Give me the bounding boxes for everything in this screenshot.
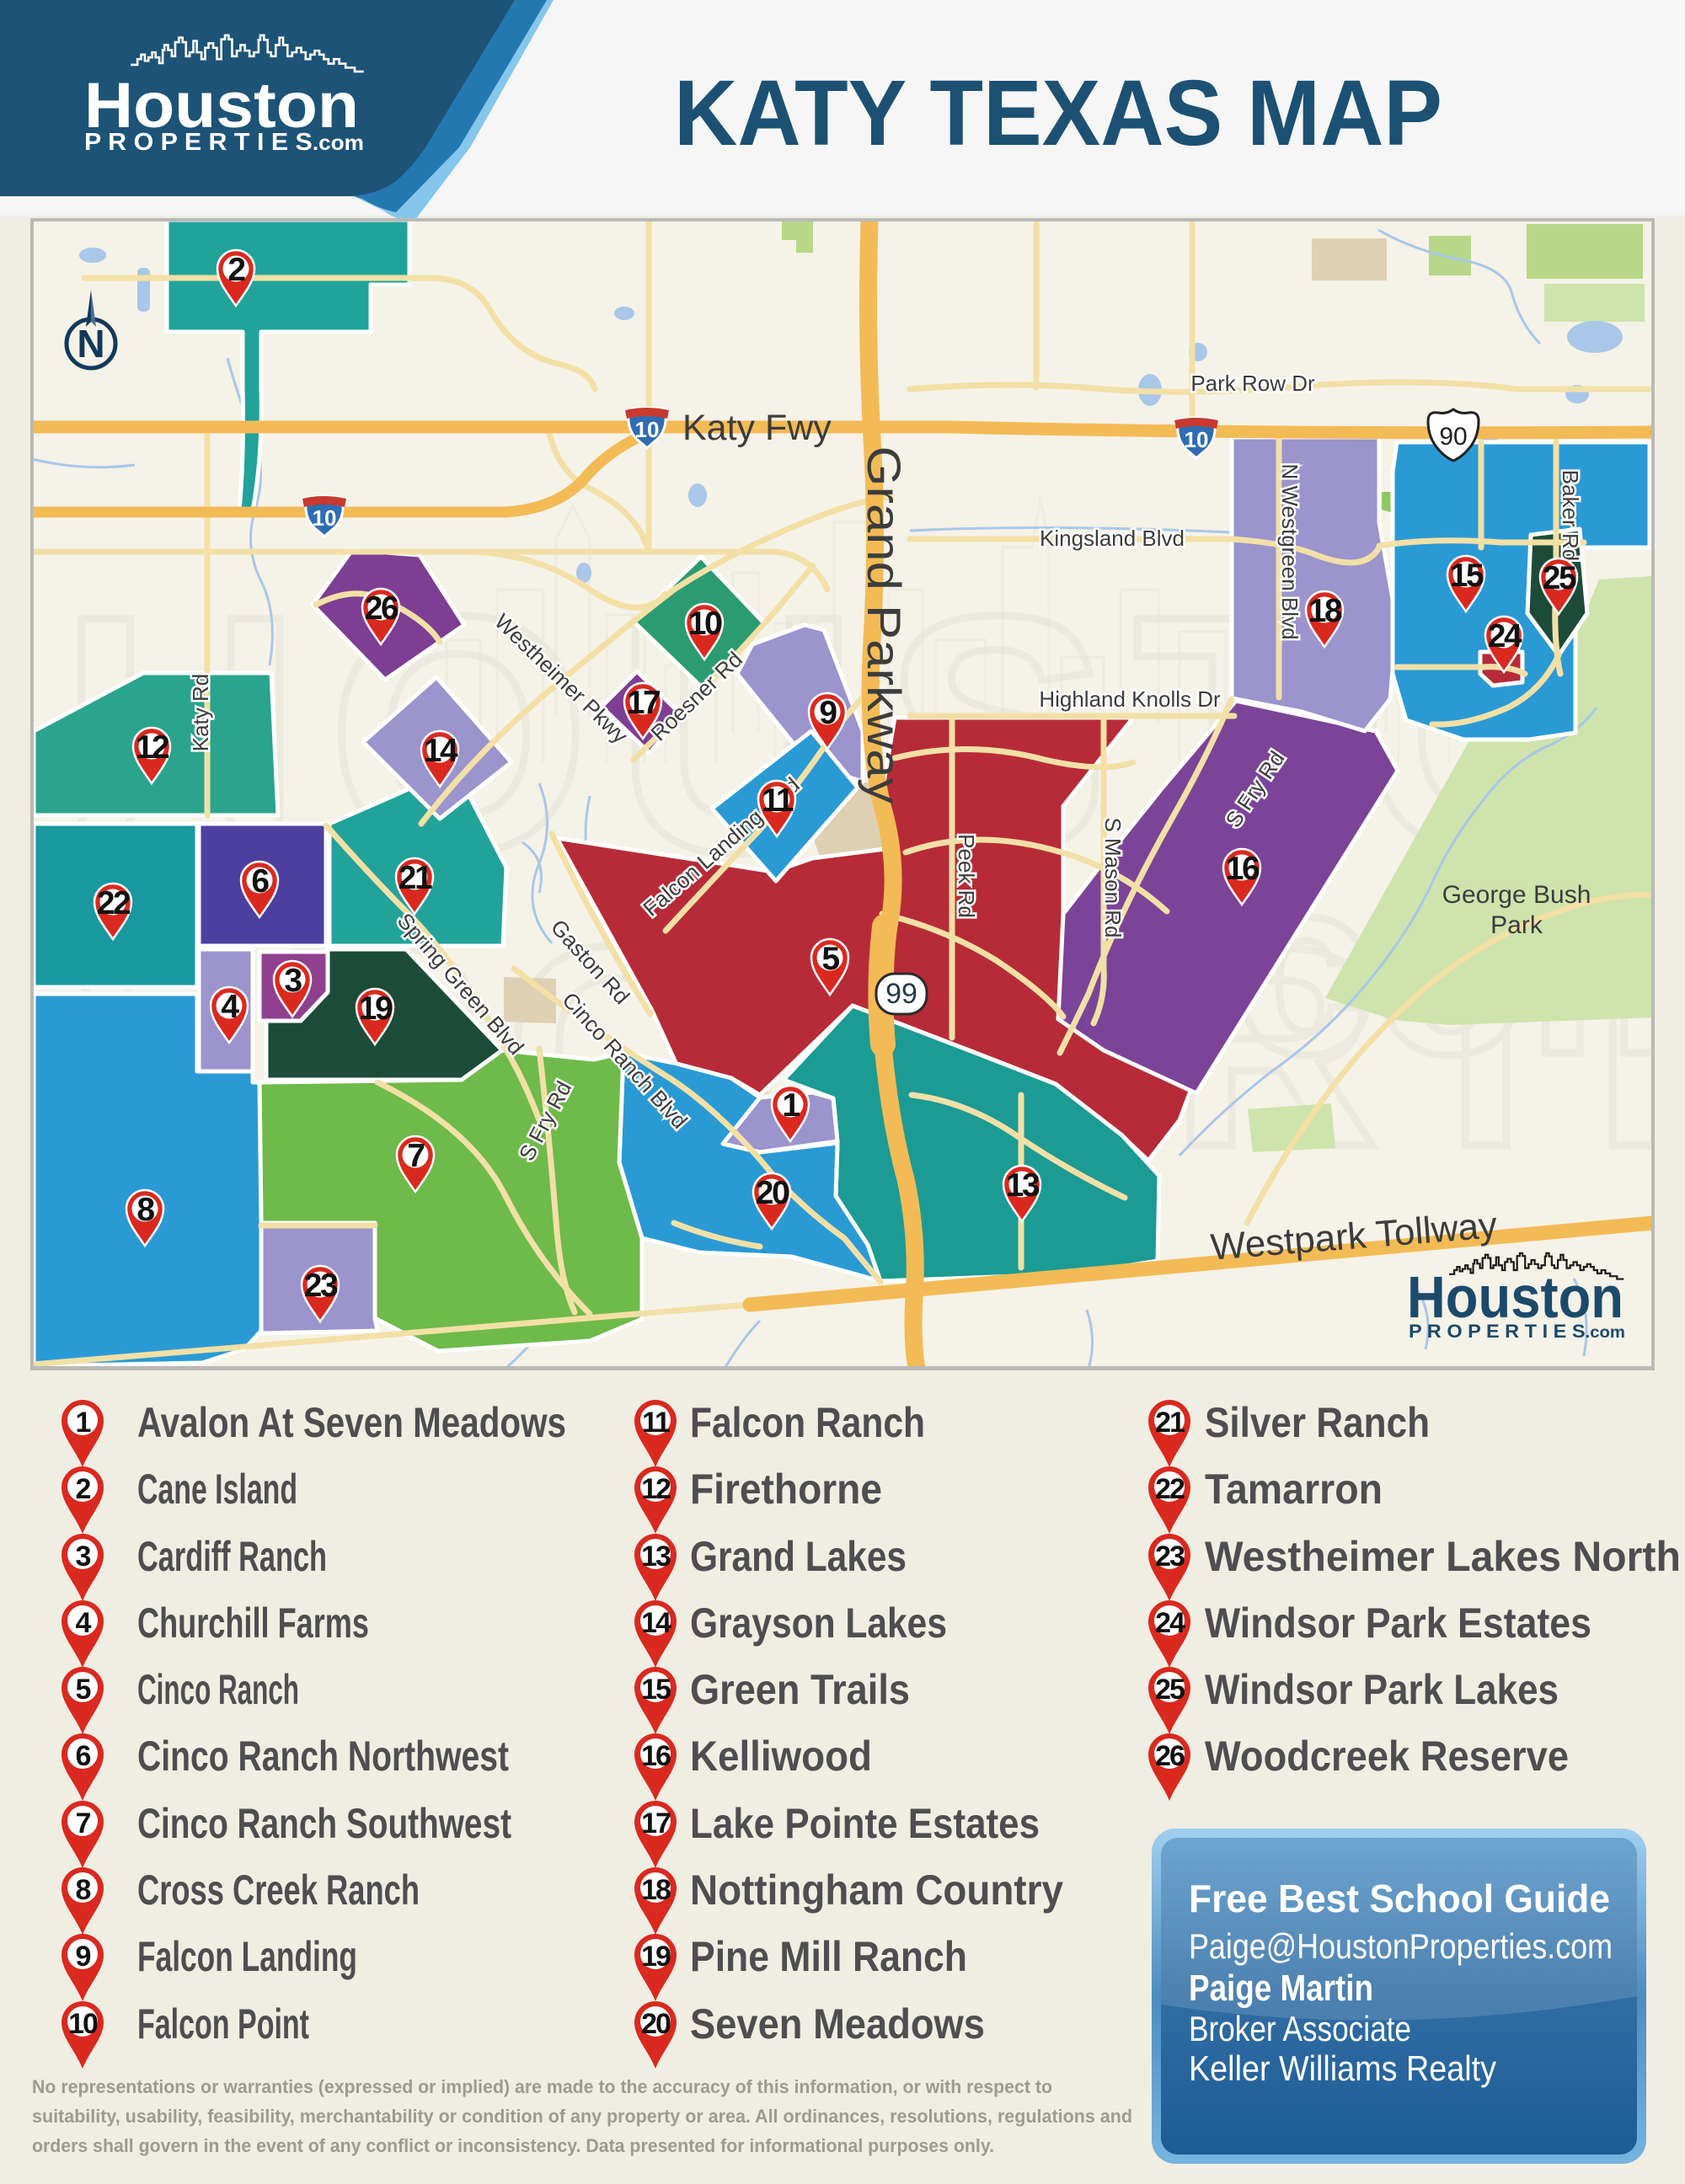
svg-text:20: 20 — [756, 1175, 789, 1211]
svg-text:4: 4 — [76, 1607, 92, 1639]
svg-text:Pine Mill Ranch: Pine Mill Ranch — [690, 1933, 967, 1980]
svg-text:Kelliwood: Kelliwood — [690, 1733, 872, 1780]
svg-text:Cinco Ranch Northwest: Cinco Ranch Northwest — [137, 1733, 509, 1780]
svg-text:KATY TEXAS MAP: KATY TEXAS MAP — [674, 61, 1442, 165]
svg-text:22: 22 — [97, 885, 131, 921]
svg-text:Park: Park — [1490, 911, 1543, 939]
svg-text:3: 3 — [76, 1541, 91, 1573]
svg-text:22: 22 — [1155, 1473, 1185, 1505]
svg-text:P R O P E R T I E S.com: P R O P E R T I E S.com — [1409, 1321, 1625, 1342]
svg-text:1: 1 — [782, 1087, 800, 1124]
svg-text:6: 6 — [251, 863, 269, 900]
svg-text:13: 13 — [1006, 1167, 1040, 1204]
svg-text:21: 21 — [399, 860, 432, 896]
svg-text:Tamarron: Tamarron — [1205, 1466, 1383, 1513]
svg-text:6: 6 — [76, 1740, 91, 1772]
svg-text:Grand Lakes: Grand Lakes — [690, 1533, 907, 1580]
svg-text:26: 26 — [1155, 1740, 1185, 1772]
svg-text:Grayson Lakes: Grayson Lakes — [690, 1599, 947, 1647]
svg-text:8: 8 — [76, 1874, 91, 1906]
svg-text:3: 3 — [284, 963, 302, 999]
svg-text:Keller Williams Realty: Keller Williams Realty — [1189, 2048, 1496, 2088]
svg-text:Baker Rd: Baker Rd — [1558, 470, 1583, 561]
svg-text:Highland Knolls Dr: Highland Knolls Dr — [1039, 686, 1221, 712]
svg-text:13: 13 — [641, 1541, 671, 1573]
svg-text:orders shall govern in the ev: orders shall govern in the event of any … — [32, 2135, 994, 2156]
svg-text:10: 10 — [1185, 427, 1209, 452]
svg-text:Firethorne: Firethorne — [690, 1466, 882, 1513]
svg-text:N Westgreen Blvd: N Westgreen Blvd — [1277, 463, 1303, 639]
svg-text:25: 25 — [1543, 560, 1576, 596]
svg-text:Free Best School Guide: Free Best School Guide — [1189, 1877, 1610, 1920]
svg-text:16: 16 — [641, 1740, 671, 1772]
svg-text:9: 9 — [76, 1941, 91, 1973]
svg-text:20: 20 — [641, 2008, 671, 2040]
svg-text:suitability, usability, feasib: suitability, usability, feasibility, mer… — [32, 2106, 1132, 2127]
svg-text:Falcon Ranch: Falcon Ranch — [690, 1399, 925, 1446]
svg-text:11: 11 — [642, 1407, 670, 1439]
svg-text:2: 2 — [76, 1473, 91, 1505]
svg-text:Cinco Ranch Southwest: Cinco Ranch Southwest — [137, 1800, 511, 1847]
svg-text:12: 12 — [136, 729, 169, 766]
svg-text:5: 5 — [821, 941, 839, 977]
svg-text:26: 26 — [365, 590, 399, 627]
svg-text:10: 10 — [688, 606, 722, 642]
svg-text:18: 18 — [641, 1874, 671, 1906]
svg-text:George Bush: George Bush — [1442, 881, 1591, 909]
svg-text:17: 17 — [641, 1808, 671, 1840]
svg-text:24: 24 — [1488, 618, 1522, 654]
svg-text:14: 14 — [424, 733, 458, 769]
svg-text:Churchill Farms: Churchill Farms — [137, 1599, 369, 1647]
svg-text:Kingsland Blvd: Kingsland Blvd — [1040, 526, 1185, 551]
svg-text:Cardiff Ranch: Cardiff Ranch — [137, 1533, 327, 1580]
svg-text:10: 10 — [635, 417, 660, 442]
svg-text:Westheimer Lakes North: Westheimer Lakes North — [1205, 1533, 1681, 1580]
svg-text:10: 10 — [68, 2008, 98, 2040]
svg-text:4: 4 — [221, 989, 239, 1025]
svg-text:16: 16 — [1226, 851, 1260, 887]
svg-text:23: 23 — [1155, 1541, 1185, 1573]
svg-text:Windsor Park Lakes: Windsor Park Lakes — [1205, 1666, 1559, 1713]
svg-text:Cross Creek Ranch: Cross Creek Ranch — [137, 1866, 420, 1914]
svg-text:12: 12 — [641, 1473, 671, 1505]
svg-text:Falcon Landing: Falcon Landing — [137, 1933, 357, 1980]
svg-text:Nottingham Country: Nottingham Country — [690, 1866, 1063, 1914]
svg-text:17: 17 — [627, 685, 660, 721]
svg-text:21: 21 — [1155, 1407, 1185, 1439]
svg-text:18: 18 — [1308, 593, 1342, 629]
svg-text:19: 19 — [641, 1941, 671, 1973]
svg-text:11: 11 — [762, 782, 794, 819]
svg-text:Paige Martin: Paige Martin — [1189, 1968, 1373, 2009]
svg-text:2: 2 — [227, 252, 245, 288]
svg-text:14: 14 — [641, 1607, 671, 1639]
svg-text:15: 15 — [641, 1674, 671, 1706]
svg-text:25: 25 — [1155, 1674, 1185, 1706]
svg-text:S Mason Rd: S Mason Rd — [1100, 817, 1126, 937]
svg-text:Silver Ranch: Silver Ranch — [1205, 1399, 1430, 1446]
svg-text:10: 10 — [313, 505, 337, 531]
svg-text:Falcon Point: Falcon Point — [137, 2000, 309, 2048]
svg-text:Seven Meadows: Seven Meadows — [690, 2000, 985, 2048]
svg-text:No representations or warranti: No representations or warranties (expres… — [32, 2076, 1052, 2097]
svg-text:Green Trails: Green Trails — [690, 1666, 910, 1713]
svg-text:P R O P E R T I E S.com: P R O P E R T I E S.com — [84, 129, 364, 156]
svg-text:8: 8 — [136, 1192, 154, 1228]
svg-text:Peek Rd: Peek Rd — [954, 834, 979, 918]
svg-text:Katy Rd: Katy Rd — [188, 674, 213, 752]
svg-text:Avalon At Seven Meadows: Avalon At Seven Meadows — [137, 1399, 566, 1446]
svg-text:Park Row Dr: Park Row Dr — [1190, 371, 1315, 396]
svg-text:Woodcreek Reserve: Woodcreek Reserve — [1205, 1733, 1569, 1780]
svg-text:Katy Fwy: Katy Fwy — [682, 408, 832, 448]
svg-text:Grand Parkway: Grand Parkway — [858, 446, 911, 804]
svg-text:1: 1 — [76, 1407, 91, 1439]
svg-text:23: 23 — [304, 1268, 338, 1304]
svg-text:99: 99 — [885, 978, 917, 1010]
svg-text:Paige@HoustonProperties.com: Paige@HoustonProperties.com — [1189, 1926, 1613, 1966]
svg-text:Broker Associate: Broker Associate — [1189, 2009, 1411, 2048]
svg-text:7: 7 — [407, 1138, 424, 1174]
svg-text:5: 5 — [76, 1674, 91, 1706]
svg-text:9: 9 — [819, 695, 837, 731]
svg-text:N: N — [77, 322, 104, 366]
svg-text:24: 24 — [1155, 1607, 1185, 1639]
svg-text:Lake Pointe Estates: Lake Pointe Estates — [690, 1800, 1040, 1847]
svg-text:15: 15 — [1450, 558, 1484, 594]
svg-text:Windsor Park Estates: Windsor Park Estates — [1205, 1599, 1591, 1647]
svg-text:19: 19 — [359, 991, 393, 1027]
svg-text:Cinco Ranch: Cinco Ranch — [137, 1666, 299, 1713]
svg-text:90: 90 — [1439, 423, 1467, 451]
svg-text:Cane Island: Cane Island — [137, 1466, 297, 1513]
svg-text:7: 7 — [76, 1808, 91, 1840]
